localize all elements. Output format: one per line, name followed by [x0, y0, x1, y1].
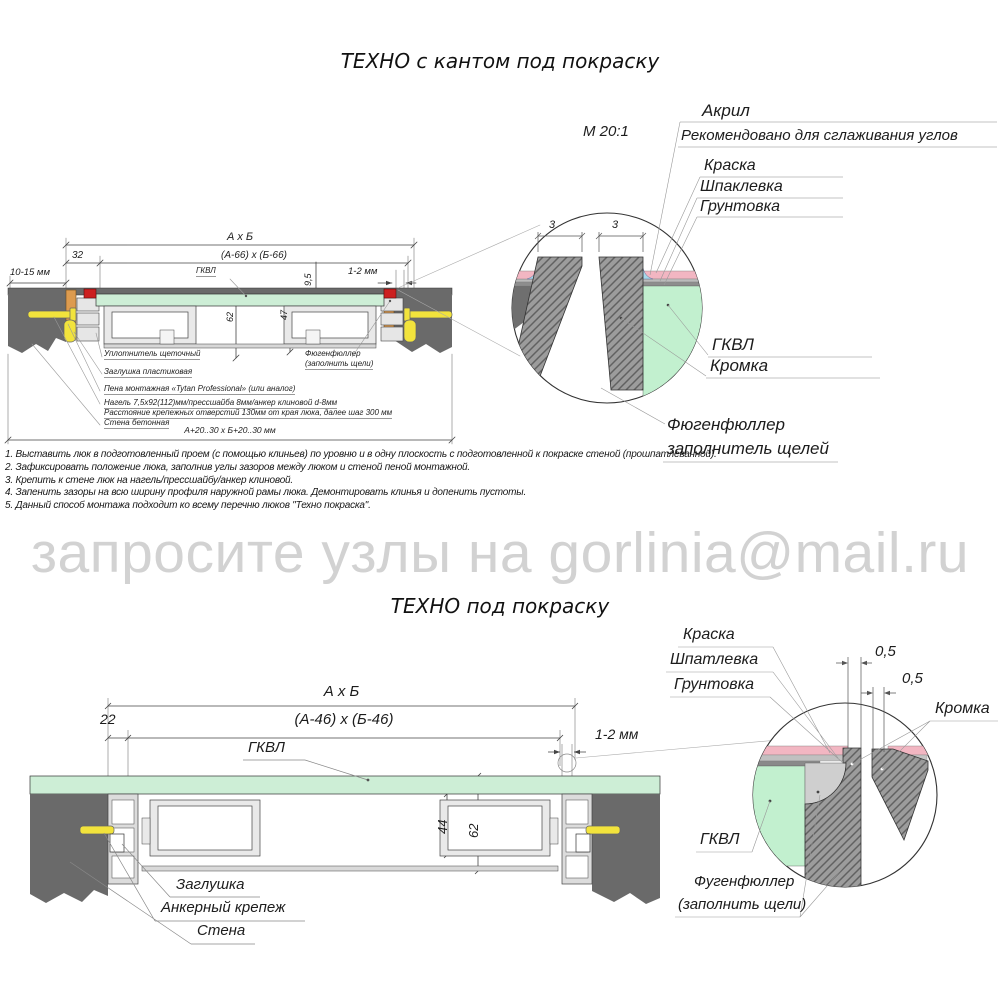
bottom-detail-putty-layer-left [752, 755, 848, 761]
bottom-detail-reference-line [576, 740, 778, 758]
bottom-panel-label: ГКВЛ [248, 740, 285, 757]
top-overall-dim: А х Б [66, 231, 414, 243]
gkvl-label-bottom-detail: ГКВЛ [700, 831, 739, 849]
edge-label-top-detail: Кромка [710, 357, 768, 376]
bottom-overall-dim: А х Б [108, 684, 575, 701]
top-h62-dim: 62 [226, 312, 236, 322]
callout-filler-line1: Фюгенфюллер [305, 350, 361, 359]
bottom-detail-paint-layer-left [752, 746, 848, 755]
top-detail-gkvl [643, 286, 705, 396]
gkvl-label-top-detail: ГКВЛ [712, 336, 754, 355]
callout-foam: Пена монтажная «Tytan Professional» (или… [104, 385, 295, 395]
filler-label-bottom-line2: (заполнить щели) [678, 897, 806, 914]
chamfer-dim-1: 0,5 [875, 644, 896, 661]
paint-label-top: Краска [704, 157, 756, 175]
note-1: 1. Выставить люк в подготовленный проем … [5, 449, 717, 460]
top-panel-label: ГКВЛ [196, 267, 216, 277]
bottom-callout-plug: Заглушка [176, 877, 244, 894]
filler-label-line1: Фюгенфюллер [667, 416, 785, 435]
bottom-gap-dim: 1-2 мм [595, 727, 638, 742]
bottom-title: ТЕХНО под покраску [0, 595, 1000, 617]
watermark-text: запросите узлы на gorlinia@mail.ru [0, 520, 1000, 586]
top-detail-primer-layer-right [643, 282, 705, 286]
primer-label-bottom: Грунтовка [674, 676, 754, 694]
bottom-detail-gkvl [752, 766, 805, 866]
callout-filler-line2: (заполнить щели) [305, 360, 373, 370]
top-wall-gap-dim: 10-15 мм [10, 268, 50, 278]
chamfer-dim-2: 0,5 [902, 671, 923, 688]
bottom-callout-wall: Стена [197, 923, 245, 940]
callout-concrete-wall: Стена бетонная [104, 419, 169, 429]
filler-label-bottom-line1: Фугенфюллер [694, 874, 794, 891]
bottom-h62-dim: 62 [467, 824, 481, 838]
note-2: 2. Зафиксировать положение люка, заполни… [5, 462, 470, 473]
top-detail-paint-layer-right [643, 271, 705, 279]
acryl-note-label: Рекомендовано для сглаживания углов [681, 128, 958, 145]
bottom-gkvl-panel [30, 776, 660, 794]
paint-label-bottom: Краска [683, 626, 735, 644]
top-offset-dim: 32 [72, 250, 83, 261]
top-gap-dim: 1-2 мм [348, 267, 377, 277]
note-4: 4. Запенить зазоры на всю ширину профиля… [5, 487, 526, 498]
top-door-leaf [104, 306, 376, 348]
putty-label-top: Шпаклевка [700, 178, 783, 196]
gap-dim-right: 3 [612, 219, 618, 231]
bottom-door-leaf [142, 800, 558, 871]
bottom-h44-dim: 44 [436, 820, 450, 834]
top-title: ТЕХНО с кантом под покраску [0, 50, 1000, 72]
primer-label-top: Грунтовка [700, 198, 780, 216]
bottom-detail-filler-dot [817, 791, 820, 794]
top-depth-dim: 9,5 [304, 273, 314, 286]
top-gkvl-panel [96, 294, 384, 306]
top-h47-dim: 47 [280, 310, 290, 320]
bottom-section-drawing [30, 698, 778, 944]
putty-label-bottom: Шпатлевка [670, 651, 758, 669]
gap-dim-left: 3 [549, 219, 555, 231]
bottom-detail-marker [558, 754, 576, 772]
edge-label-bottom-detail: Кромка [935, 700, 990, 718]
drawing-sheet: { "colors": { "wall_gray": "#6a6a6a", "p… [0, 0, 1000, 1000]
bottom-offset-dim: 22 [100, 712, 116, 727]
top-detail-putty-layer-right [643, 279, 705, 282]
detail-scale-label: М 20:1 [583, 124, 629, 141]
acryl-label: Акрил [702, 102, 750, 121]
top-inner-dim: (А-66) х (Б-66) [100, 250, 408, 261]
callout-plastic-plug: Заглушка пластиковая [104, 368, 192, 378]
bottom-callout-anchor: Анкерный крепеж [161, 900, 285, 917]
callout-brush-seal: Уплотнитель щеточный [104, 350, 200, 360]
note-5: 5. Данный способ монтажа подходит ко все… [5, 500, 371, 511]
bottom-inner-dim: (А-46) х (Б-46) [128, 712, 560, 729]
note-3: 3. Крепить к стене люк на нагель/прессша… [5, 475, 293, 486]
